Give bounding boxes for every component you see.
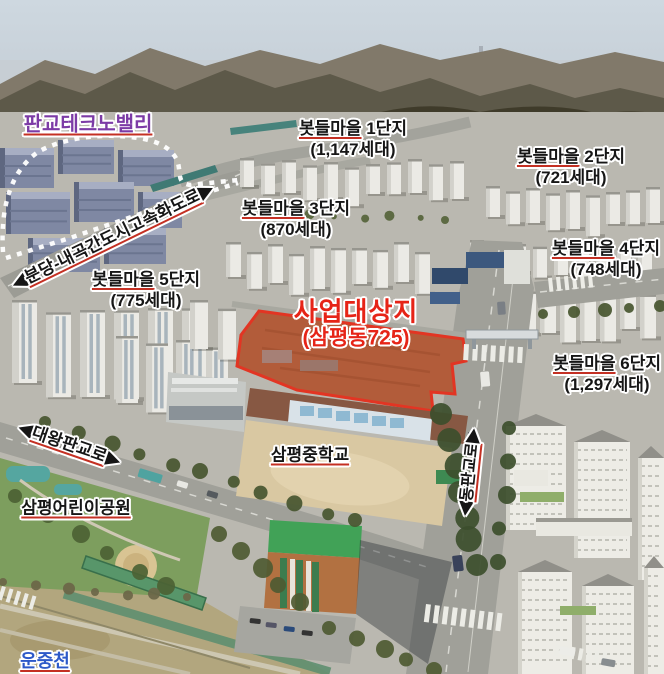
- label-complex-4: 봇들마을 4단지 (748세대): [552, 238, 660, 280]
- complex-name: 봇들마을 1단지: [299, 118, 407, 139]
- green-roof-building: [268, 520, 362, 558]
- label-complex-6: 봇들마을 6단지 (1,297세대): [553, 353, 661, 395]
- label-complex-1: 봇들마을 1단지 (1,147세대): [299, 118, 407, 160]
- complex-name: 봇들마을 2단지: [517, 146, 625, 167]
- label-project-site: 사업대상지 (삼평동725): [294, 298, 419, 351]
- label-middle-school: 삼평중학교: [271, 441, 349, 466]
- label-complex-2: 봇들마을 2단지 (721세대): [517, 146, 625, 188]
- complex-households: (748세대): [552, 259, 660, 280]
- label-complex-5: 봇들마을 5단지 (775세대): [92, 269, 200, 311]
- site-subtitle: (삼평동725): [294, 327, 419, 351]
- label-complex-3: 봇들마을 3단지 (870세대): [242, 198, 350, 240]
- map-canvas: 판교테크노밸리 봇들마을 1단지 (1,147세대) 봇들마을 2단지 (721…: [0, 0, 664, 674]
- complex-name: 봇들마을 3단지: [242, 198, 350, 219]
- arrow-right-icon: ▶: [462, 427, 484, 444]
- complex-name: 봇들마을 5단지: [92, 269, 200, 290]
- label-stream: 운중천: [20, 647, 70, 673]
- complex-name: 봇들마을 6단지: [553, 353, 661, 374]
- complex-households: (1,297세대): [553, 374, 661, 395]
- complex-name: 봇들마을 4단지: [552, 238, 660, 259]
- complex-households: (775세대): [92, 290, 200, 311]
- complex-households: (1,147세대): [299, 139, 407, 160]
- label-pangyo-techno-valley: 판교테크노밸리: [24, 108, 153, 137]
- arrow-left-icon: ◀: [454, 500, 476, 517]
- site-title: 사업대상지: [294, 298, 419, 327]
- complex-households: (721세대): [517, 167, 625, 188]
- label-childrens-park: 삼평어린이공원: [21, 494, 130, 519]
- complex-households: (870세대): [242, 219, 350, 240]
- pangyo-text: 판교테크노밸리: [24, 114, 153, 136]
